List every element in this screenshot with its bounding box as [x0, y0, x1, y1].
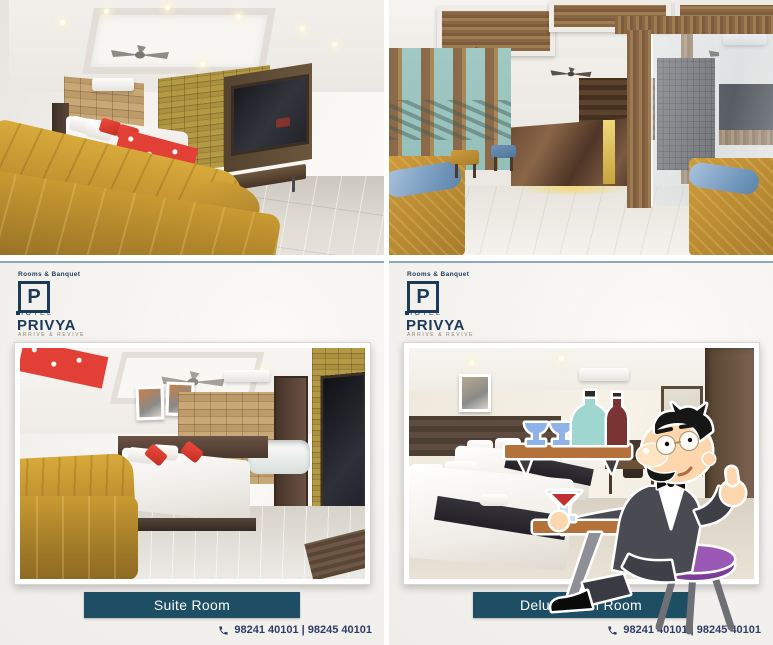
- card-deluxe-twin-room: Rooms & Banquet P HOTEL PRIVYA ARRIVE & …: [389, 261, 773, 645]
- wood-pillar: [627, 30, 651, 208]
- bar-shelf: [505, 391, 631, 473]
- card-suite-room: Rooms & Banquet P HOTEL PRIVYA ARRIVE & …: [0, 261, 384, 645]
- logo-tagline: ARRIVE & REVIVE: [407, 332, 474, 338]
- hand: [550, 512, 568, 530]
- stool-leg: [455, 164, 458, 178]
- logo-hotel-word: HOTEL: [407, 310, 442, 317]
- sofa-seat: [20, 496, 138, 579]
- phone-icon: [218, 625, 229, 636]
- spotlight: [104, 9, 109, 14]
- stool-leg: [473, 164, 476, 178]
- ceiling-fan-icon: [108, 44, 172, 66]
- logo-tagline: ARRIVE & REVIVE: [18, 332, 85, 338]
- hotel-photo-collage: Rooms & Banquet P HOTEL PRIVYA ARRIVE & …: [0, 0, 773, 645]
- phone-numbers-left: 98241 40101 | 98245 40101: [218, 624, 372, 636]
- hotel-privya-logo: Rooms & Banquet P HOTEL PRIVYA ARRIVE & …: [16, 271, 166, 337]
- logo-category: Rooms & Banquet: [407, 271, 469, 278]
- phone-text: 98241 40101 | 98245 40101: [234, 624, 372, 636]
- logo-category: Rooms & Banquet: [18, 271, 80, 278]
- hotel-privya-logo: Rooms & Banquet P HOTEL PRIVYA ARRIVE & …: [405, 271, 555, 337]
- spotlight: [236, 14, 241, 19]
- logo-hotel-word: HOTEL: [18, 310, 53, 317]
- spotlight: [200, 62, 205, 67]
- wall-art: [459, 374, 491, 412]
- photo-frame: [14, 342, 371, 585]
- mustard-stool: [451, 150, 479, 165]
- logo-monogram: P: [18, 281, 50, 313]
- air-conditioner: [224, 370, 270, 382]
- stool-leg: [510, 157, 513, 171]
- logo-monogram: P: [407, 281, 439, 313]
- spotlight: [300, 26, 305, 31]
- photo-hotel-lobby: [389, 0, 773, 255]
- television: [231, 74, 309, 156]
- spotlight: [559, 356, 564, 361]
- room-label-suite: Suite Room: [84, 592, 300, 618]
- stool-leg: [494, 157, 497, 171]
- photo-suite-room: [0, 0, 384, 255]
- spotlight: [332, 42, 337, 47]
- spotlight: [469, 360, 474, 365]
- suite-room-photo-small: [20, 348, 365, 579]
- waiter-head: [637, 403, 715, 482]
- spotlight: [165, 5, 170, 10]
- air-conditioner: [92, 78, 134, 91]
- gold-desk-strip: [603, 120, 615, 184]
- wall-art: [135, 386, 164, 421]
- spotlight: [60, 20, 65, 25]
- foot-bench: [138, 518, 256, 531]
- thumb: [726, 466, 738, 485]
- console-leg: [292, 176, 295, 192]
- cartoon-waiter-illustration: [489, 375, 773, 641]
